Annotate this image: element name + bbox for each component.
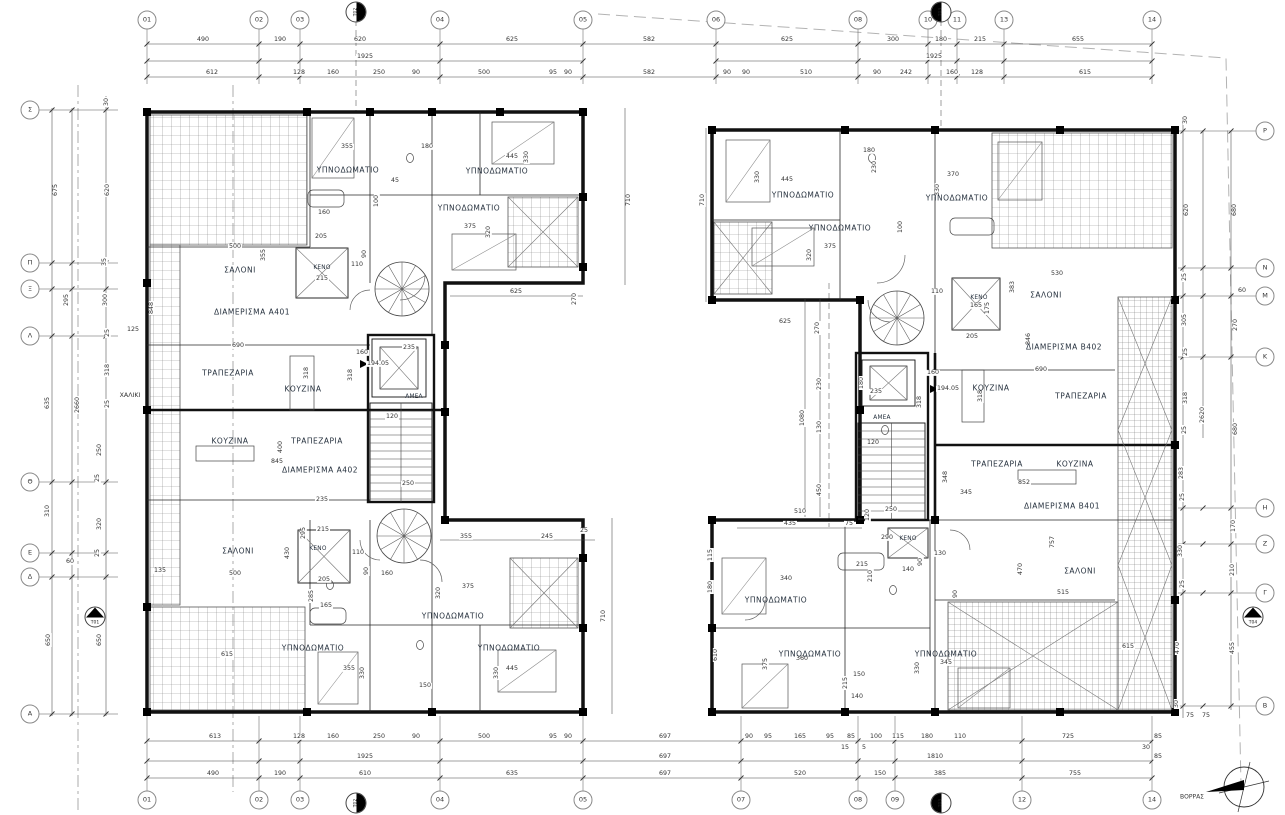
grid-bubble: Η [1256,499,1275,518]
dimension-label: 242 [899,70,913,76]
dimension-label: 400 [278,440,284,454]
dimension-label: 318 [917,395,923,409]
dimension-label: 1925 [356,54,374,60]
dimension-label: 235 [402,345,416,351]
room-label: ΔΙΑΜΕΡΙΣΜΑ Α401 [214,308,290,317]
dimension-label: 310 [45,504,51,518]
dimension-label: 215 [315,276,329,282]
dimension-label: 190 [273,37,287,43]
section-marker: T02 [346,2,367,23]
section-marker-label: T04 [1244,608,1263,627]
grid-bubble: Ε [21,544,40,563]
dimension-label: 697 [658,754,672,760]
dimension-label: 295 [64,293,70,307]
annotation-label: 194.05 [366,361,390,367]
annotation-label: 194.05 [936,386,960,392]
dimension-label: 620 [105,183,111,197]
dimension-label: 435 [783,521,797,527]
room-label: ΥΠΝΟΔΩΜΑΤΙΟ [809,224,871,233]
grid-bubble: 07 [732,791,751,810]
dimension-label: 375 [763,657,769,671]
dimension-label: 318 [304,366,310,380]
dimension-label: 85 [1153,734,1163,740]
dimension-label: 90 [563,734,573,740]
dimension-label: 165 [793,734,807,740]
section-marker: T01 [85,607,106,628]
dimension-label: 295 [301,526,307,540]
grid-bubble: 02 [250,791,269,810]
dimension-label: 15 [840,745,850,751]
dimension-label: 305 [1182,313,1188,327]
grid-bubble: 03 [291,791,310,810]
dimension-label: 290 [880,535,894,541]
grid-bubble: Ν [1256,259,1275,278]
dimension-label: 370 [946,172,960,178]
dimension-label: 230 [872,160,878,174]
dimension-label: 215 [855,562,869,568]
room-label: ΔΙΑΜΕΡΙΣΜΑ Α402 [282,466,358,475]
dimension-label: 375 [823,244,837,250]
dimension-label: 710 [700,193,706,207]
section-marker: T03 [931,2,952,23]
room-label: ΥΠΝΟΔΩΜΑΤΙΟ [438,204,500,213]
dimension-label: 90 [364,566,370,576]
grid-bubble: Β [1256,697,1275,716]
room-label: ΚΟΥΖΙΝΑ [212,437,249,446]
dimension-label: 25 [1183,347,1189,357]
dimension-label: 110 [930,289,944,295]
dimension-label: 250 [372,734,386,740]
dimension-label: 445 [780,177,794,183]
dimension-label: 330 [915,661,921,675]
grid-bubble: 12 [1013,791,1032,810]
dimension-label: 140 [850,694,864,700]
dimension-label: 90 [362,249,368,259]
room-label: ΥΠΝΟΔΩΜΑΤΙΟ [422,612,484,621]
dimension-label: 25 [1182,425,1188,435]
dimension-label: 245 [540,534,554,540]
dimension-label: 582 [642,70,656,76]
dimension-label: 625 [780,37,794,43]
dimension-label: 270 [1233,318,1239,332]
dimension-label: 710 [601,609,607,623]
section-marker-label: T02 [347,3,366,22]
dimension-label: 210 [1230,563,1236,577]
dimension-label: 5 [861,745,867,751]
dimension-label: 180 [934,37,948,43]
dimension-label: 330 [524,150,530,164]
dimension-label: 30 [1183,115,1189,125]
dimension-label: 190 [273,771,287,777]
dimension-label: 95 [825,734,835,740]
dimension-label: 490 [196,37,210,43]
dimension-label: 90 [741,70,751,76]
dimension-label: 90 [918,557,924,567]
dimension-label: 500 [477,70,491,76]
dimension-label: 250 [97,443,103,457]
dimension-label: 620 [353,37,367,43]
dimension-label: 445 [505,666,519,672]
dimension-label: 500 [228,244,242,250]
room-label: ΥΠΝΟΔΩΜΑΤΙΟ [926,194,988,203]
dimension-label: 318 [1183,391,1189,405]
floor-plan-sheet: ΒΟΡΡΑΣ 490190620625582625300180215655192… [0,0,1285,815]
dimension-label: 320 [486,225,492,239]
grid-bubble: 03 [291,11,310,30]
dimension-label: 320 [97,517,103,531]
dimension-label: 625 [505,37,519,43]
dimension-label: 45 [390,178,400,184]
dimension-label: 85 [1153,754,1163,760]
grid-bubble: 05 [574,791,593,810]
room-label: ΥΠΝΟΔΩΜΑΤΙΟ [317,166,379,175]
dimension-label: 355 [261,248,267,262]
grid-bubble: Ζ [1256,535,1275,554]
section-marker: T02 [346,793,367,814]
dimension-label: 210 [868,569,874,583]
dimension-label: 110 [350,262,364,268]
dimension-label: 690 [1034,367,1048,373]
section-marker: T03 [931,793,952,814]
dimension-label: 125 [126,327,140,333]
dimension-label: 85 [846,734,856,740]
dimension-label: 160 [926,370,940,376]
plan-linework [0,0,1285,815]
dimension-label: 582 [642,37,656,43]
dimension-label: 128 [292,734,306,740]
section-marker-label: T01 [86,608,105,627]
dimension-label: 530 [1050,271,1064,277]
dimension-label: 848 [149,301,155,315]
dimension-label: 60 [65,559,75,565]
grid-bubble: 14 [1143,11,1162,30]
dimension-label: 75 [1185,713,1195,719]
dimension-label: 385 [933,771,947,777]
room-label: ΑΜΕΑ [873,415,890,421]
dimension-label: 25 [1180,492,1186,502]
dimension-label: 25 [579,528,589,534]
dimension-label: 160 [326,70,340,76]
dimension-label: 90 [411,70,421,76]
dimension-label: 150 [852,672,866,678]
room-label: ΥΠΝΟΔΩΜΑΤΙΟ [772,191,834,200]
dimension-label: 128 [292,70,306,76]
dimension-label: 160 [355,350,369,356]
dimension-label: 610 [713,648,719,662]
dimension-label: 60 [1237,288,1247,294]
dimension-label: 250 [401,481,415,487]
dimension-label: 680 [1233,422,1239,436]
dimension-label: 455 [1230,641,1236,655]
dimension-label: 615 [1121,644,1135,650]
dimension-label: 270 [572,292,578,306]
dimension-label: 25 [105,328,111,338]
grid-bubble: Λ [21,327,40,346]
dimension-label: 165 [969,303,983,309]
dimension-label: 95 [548,70,558,76]
room-label: ΣΑΛΟΝΙ [1064,567,1096,576]
grid-bubble: 09 [886,791,905,810]
dimension-label: 318 [348,368,354,382]
dimension-label: 1080 [800,409,806,427]
grid-bubble: Π [21,254,40,273]
room-label: ΥΠΝΟΔΩΜΑΤΙΟ [478,644,540,653]
room-label: ΤΡΑΠΕΖΑΡΙΑ [291,437,343,446]
dimension-label: 355 [340,144,354,150]
dimension-label: 725 [1061,734,1075,740]
dimension-label: 170 [1231,519,1237,533]
dimension-label: 318 [105,363,111,377]
dimension-label: 160 [945,70,959,76]
dimension-label: 445 [505,154,519,160]
dimension-label: 620 [1184,203,1190,217]
room-label: ΚΕΝΟ [899,536,916,542]
dimension-label: 330 [755,170,761,184]
annotation-label: ΧΑΛΙΚΙ [119,393,142,399]
grid-bubble: Ξ [21,280,40,299]
dimension-label: 215 [973,37,987,43]
room-label: ΚΕΝΟ [313,265,330,271]
grid-bubble: 14 [1143,791,1162,810]
dimension-label: 283 [1179,466,1185,480]
dimension-label: 160 [317,210,331,216]
dimension-label: 625 [509,289,523,295]
dimension-label: 510 [799,70,813,76]
dimension-label: 375 [461,584,475,590]
dimension-label: 330 [1178,544,1184,558]
dimension-label: 135 [153,568,167,574]
dimension-label: 160 [380,571,394,577]
dimension-label: 520 [793,771,807,777]
dimension-label: 340 [779,576,793,582]
dimension-label: 1925 [356,754,374,760]
dimension-label: 852 [1017,480,1031,486]
dimension-label: 25 [95,548,101,558]
dimension-label: 205 [965,334,979,340]
room-label: ΥΠΝΟΔΩΜΑΤΙΟ [915,650,977,659]
dimension-label: 75 [1201,713,1211,719]
dimension-label: 615 [220,652,234,658]
grid-bubble: Α [21,705,40,724]
dimension-label: 515 [1056,590,1070,596]
dimension-label: 90 [563,70,573,76]
dimension-label: 755 [1068,771,1082,777]
dimension-label: 697 [658,734,672,740]
room-label: ΑΜΕΑ [405,394,422,400]
room-label: ΔΙΑΜΕΡΙΣΜΑ Β402 [1026,343,1102,352]
dimension-label: 90 [744,734,754,740]
dimension-label: 95 [763,734,773,740]
grid-bubble: Ρ [1256,122,1275,141]
dimension-label: 500 [228,571,242,577]
room-label: ΤΡΑΠΕΖΑΡΙΑ [971,460,1023,469]
dimension-label: 1925 [925,54,943,60]
dimension-label: 355 [342,666,356,672]
dimension-label: 75 [844,521,854,527]
room-label: ΤΡΑΠΕΖΑΡΙΑ [202,369,254,378]
grid-bubble: Μ [1256,287,1275,306]
dimension-label: 205 [314,234,328,240]
dimension-label: 115 [708,548,714,562]
dimension-label: 500 [477,734,491,740]
grid-bubble: Γ [1256,584,1275,603]
dimension-label: 35 [102,257,108,267]
dimension-label: 230 [817,377,823,391]
section-marker-label: T03 [932,3,951,22]
room-label: ΥΠΝΟΔΩΜΑΤΙΟ [282,644,344,653]
north-label: ΒΟΡΡΑΣ [1180,794,1204,801]
dimension-label: 250 [884,507,898,513]
dimension-label: 2660 [75,396,81,414]
grid-bubble: 06 [707,11,726,30]
grid-bubble: 13 [995,11,1014,30]
room-label: ΥΠΝΟΔΩΜΑΤΙΟ [779,650,841,659]
terrace-hatching [150,115,1172,710]
dimension-label: 690 [231,343,245,349]
dimension-label: 650 [46,633,52,647]
room-label: ΔΙΑΜΕΡΙΣΜΑ Β401 [1024,502,1100,511]
dimension-label: 300 [103,293,109,307]
dimension-label: 612 [205,70,219,76]
dimension-label: 180 [920,734,934,740]
grid-bubble: 04 [431,11,450,30]
dimension-label: 25 [1180,579,1186,589]
dimension-label: 25 [95,473,101,483]
dimension-label: 165 [319,603,333,609]
section-marker-label: T02 [347,794,366,813]
dimension-label: 300 [886,37,900,43]
dimension-label: 150 [418,683,432,689]
dimension-label: 697 [658,771,672,777]
grid-bubble: 01 [138,11,157,30]
dimension-label: 205 [317,577,331,583]
room-label: ΣΑΛΟΝΙ [1030,291,1062,300]
dimension-label: 345 [939,660,953,666]
dimension-label: 175 [985,301,991,315]
dimension-label: 120 [385,414,399,420]
dimension-label: 115 [891,734,905,740]
dimension-label: 30 [1141,745,1151,751]
dimension-label: 375 [463,224,477,230]
grid-bubble: 05 [574,11,593,30]
dimension-label: 90 [722,70,732,76]
dimension-label: 470 [1018,562,1024,576]
dimension-label: 140 [901,567,915,573]
dimension-label: 25 [1182,272,1188,282]
grid-bubble: 08 [849,791,868,810]
dimension-label: 490 [206,771,220,777]
dimension-label: 90 [872,70,882,76]
grid-bubble: 08 [849,11,868,30]
dimension-label: 615 [1078,70,1092,76]
dimension-label: 100 [898,220,904,234]
dimension-label: 215 [316,527,330,533]
dimension-label: 160 [326,734,340,740]
dimension-label: 757 [1050,535,1056,549]
dimension-label: 180 [708,580,714,594]
grid-bubble: Κ [1256,348,1275,367]
dimension-label: 470 [1175,641,1181,655]
dimension-label: 635 [505,771,519,777]
section-marker-label: T03 [932,794,951,813]
dimension-label: 180 [420,144,434,150]
room-label: ΚΟΥΖΙΝΑ [973,384,1010,393]
dimension-label: 130 [817,420,823,434]
dimension-label: 635 [45,396,51,410]
dimension-label: 383 [1010,280,1016,294]
dimension-label: 330 [360,666,366,680]
dimension-label: 90 [953,589,959,599]
dimension-label: 128 [970,70,984,76]
dimension-label: 845 [270,459,284,465]
dimension-label: 613 [208,734,222,740]
dimension-label: 680 [1232,203,1238,217]
dimension-label: 430 [285,546,291,560]
dimension-label: 110 [953,734,967,740]
dimension-label: 1810 [926,754,944,760]
dimension-label: 285 [309,589,315,603]
dimension-label: 120 [866,440,880,446]
grid-bubble: 04 [431,791,450,810]
dimension-label: 450 [817,483,823,497]
room-label: ΥΠΝΟΔΩΜΑΤΙΟ [466,167,528,176]
grid-bubble: 02 [250,11,269,30]
room-label: ΥΠΝΟΔΩΜΑΤΙΟ [745,596,807,605]
dimension-label: 610 [358,771,372,777]
dimension-label: 270 [815,321,821,335]
grid-bubble: Θ [21,473,40,492]
dimension-label: 330 [494,666,500,680]
dimension-label: 130 [933,551,947,557]
room-label: ΣΑΛΟΝΙ [224,266,256,275]
dimension-label: 215 [843,676,849,690]
room-label: ΣΑΛΟΝΙ [222,547,254,556]
dimension-label: 510 [793,509,807,515]
room-label: ΚΟΥΖΙΝΑ [1057,460,1094,469]
grid-bubble: Σ [21,101,40,120]
dimension-label: 355 [459,534,473,540]
room-label: ΚΕΝΟ [970,295,987,301]
dimension-label: 25 [105,399,111,409]
dimension-label: 320 [807,248,813,262]
room-label: ΤΡΑΠΕΖΑΡΙΑ [1055,392,1107,401]
dimension-label: 95 [548,734,558,740]
dimension-label: 250 [372,70,386,76]
dimension-label: 120 [865,508,871,522]
dimension-label: 180 [859,376,865,390]
dimension-label: 650 [97,633,103,647]
dimension-label: 110 [351,550,365,556]
dimension-label: 710 [626,193,632,207]
dimension-label: 2620 [1200,406,1206,424]
dimension-label: 180 [862,148,876,154]
dimension-label: 348 [943,470,949,484]
dimension-label: 235 [869,389,883,395]
room-label: ΚΟΥΖΙΝΑ [285,385,322,394]
dimension-label: 150 [873,771,887,777]
north-compass-icon [1206,762,1269,812]
door-swings [350,255,970,620]
section-marker: T04 [1243,607,1264,628]
dimension-label: 675 [53,183,59,197]
dimension-label: 90 [411,734,421,740]
dimension-label: 30 [104,97,110,107]
dimension-label: 345 [959,490,973,496]
dimension-label: 320 [436,586,442,600]
grid-bubble: Δ [21,568,40,587]
dimension-label: 655 [1071,37,1085,43]
dimension-label: 30 [1174,699,1180,709]
